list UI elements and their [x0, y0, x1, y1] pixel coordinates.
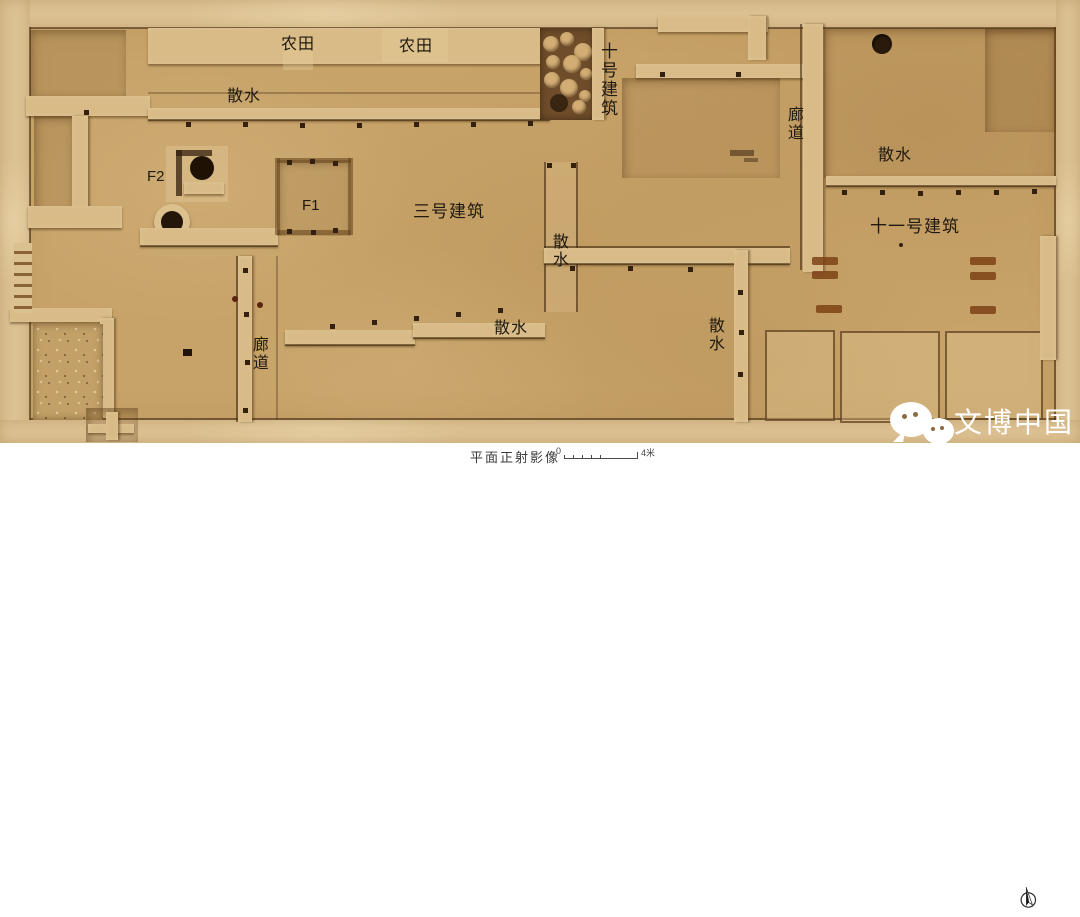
wall [1040, 236, 1056, 360]
label-building-3: 三号建筑 [413, 202, 485, 221]
pit [872, 34, 892, 54]
posthole-row [287, 160, 292, 165]
apron-edge [148, 92, 548, 94]
posthole-row [842, 190, 847, 195]
posthole-row [243, 268, 248, 273]
plan-caption: 平面正射影像 [470, 447, 560, 466]
wall-edge [576, 162, 578, 312]
baulk-right [1056, 0, 1080, 443]
label-farmland-1: 农田 [281, 36, 315, 54]
posthole [84, 110, 89, 115]
pottery-vessel [580, 68, 592, 80]
door-socket [816, 305, 842, 313]
pottery-vessel [546, 55, 560, 69]
room [985, 28, 1056, 132]
label-apron-bottom-right: 散水 [705, 317, 723, 353]
scalebar [564, 449, 638, 459]
f2-wall [176, 150, 182, 196]
bubble-eyes [902, 414, 907, 419]
posthole-row [547, 163, 552, 168]
f2-wall [176, 150, 212, 156]
posthole [899, 243, 903, 247]
label-corridor-right: 廊道 [784, 106, 802, 142]
orthophoto-plan: 农田 农田 散水 十号建筑 廊道 散水 F2 F1 三号建筑 散水 十一号建筑 … [0, 0, 1080, 443]
wall-edge [140, 245, 278, 247]
label-apron-mid: 散水 [549, 233, 567, 269]
wall [72, 116, 88, 212]
pottery-vessel [572, 100, 586, 114]
posthole-row [570, 266, 575, 271]
wall [748, 16, 766, 60]
north-arrow-icon [1014, 884, 1042, 917]
wall [184, 182, 224, 194]
posthole [257, 302, 263, 308]
scalebar-tick [564, 455, 565, 459]
door-socket [970, 257, 996, 265]
artifact [183, 349, 192, 356]
room [30, 30, 126, 96]
door-socket [812, 257, 838, 265]
wall-edge [826, 185, 1056, 187]
stepped-feature [14, 243, 32, 313]
rubble-deposit [33, 324, 103, 420]
wall-edge [148, 119, 550, 121]
scalebar-zero: 0 [556, 446, 561, 456]
corridor-wall [803, 24, 823, 272]
pottery-vessel [543, 36, 559, 52]
pottery-vessel [563, 55, 581, 73]
posthole-row [330, 324, 335, 329]
watermark: 文博中国 [886, 399, 1076, 443]
label-farmland-2: 农田 [399, 38, 433, 56]
posthole-row [186, 122, 191, 127]
label-apron-top: 散水 [227, 88, 261, 106]
wall-edge [285, 344, 415, 346]
watermark-text: 文博中国 [954, 401, 1074, 441]
f1-wall [275, 158, 280, 235]
burn-mark [730, 150, 754, 156]
burn-mark [744, 158, 758, 162]
label-apron-bottom: 散水 [494, 320, 528, 338]
label-f2: F2 [147, 169, 165, 186]
door-socket [812, 271, 838, 279]
f1-wall [348, 158, 353, 235]
label-f1: F1 [302, 198, 320, 215]
f1-wall [277, 230, 351, 235]
baulk-top [0, 0, 1080, 28]
door-socket [970, 306, 996, 314]
pottery-vessel [560, 32, 574, 46]
posthole [232, 296, 238, 302]
wall [734, 250, 748, 422]
wall-edge [544, 263, 790, 265]
door-socket [970, 272, 996, 280]
wall [140, 228, 278, 246]
wechat-speech-bubble-small-icon [923, 418, 954, 443]
corridor-edge [276, 256, 278, 420]
wall [28, 206, 122, 228]
baulk-left [0, 0, 30, 443]
label-corridor-bottom: 廊道 [249, 336, 267, 372]
label-building-11: 十一号建筑 [870, 217, 960, 236]
pottery-vessel [544, 72, 560, 88]
room [34, 116, 72, 212]
label-building-10: 十号建筑 [598, 42, 617, 118]
well-pit [190, 156, 214, 180]
apron-band [285, 330, 415, 345]
label-apron-right: 散水 [878, 147, 912, 165]
wall-edge [800, 24, 802, 270]
room [765, 330, 835, 421]
posthole-row [660, 72, 665, 77]
scalebar-max: 4米 [641, 446, 655, 459]
wall-platform [148, 28, 548, 64]
cross-feature [106, 412, 118, 440]
scalebar-end-tick [637, 452, 638, 459]
wall-edge [544, 246, 790, 248]
caption-bar: 平面正射影像 0 4米 [0, 443, 1080, 469]
bubble-eyes [931, 427, 935, 431]
pottery-vessel-dark [550, 94, 568, 112]
room [622, 78, 780, 178]
wall [544, 248, 790, 264]
